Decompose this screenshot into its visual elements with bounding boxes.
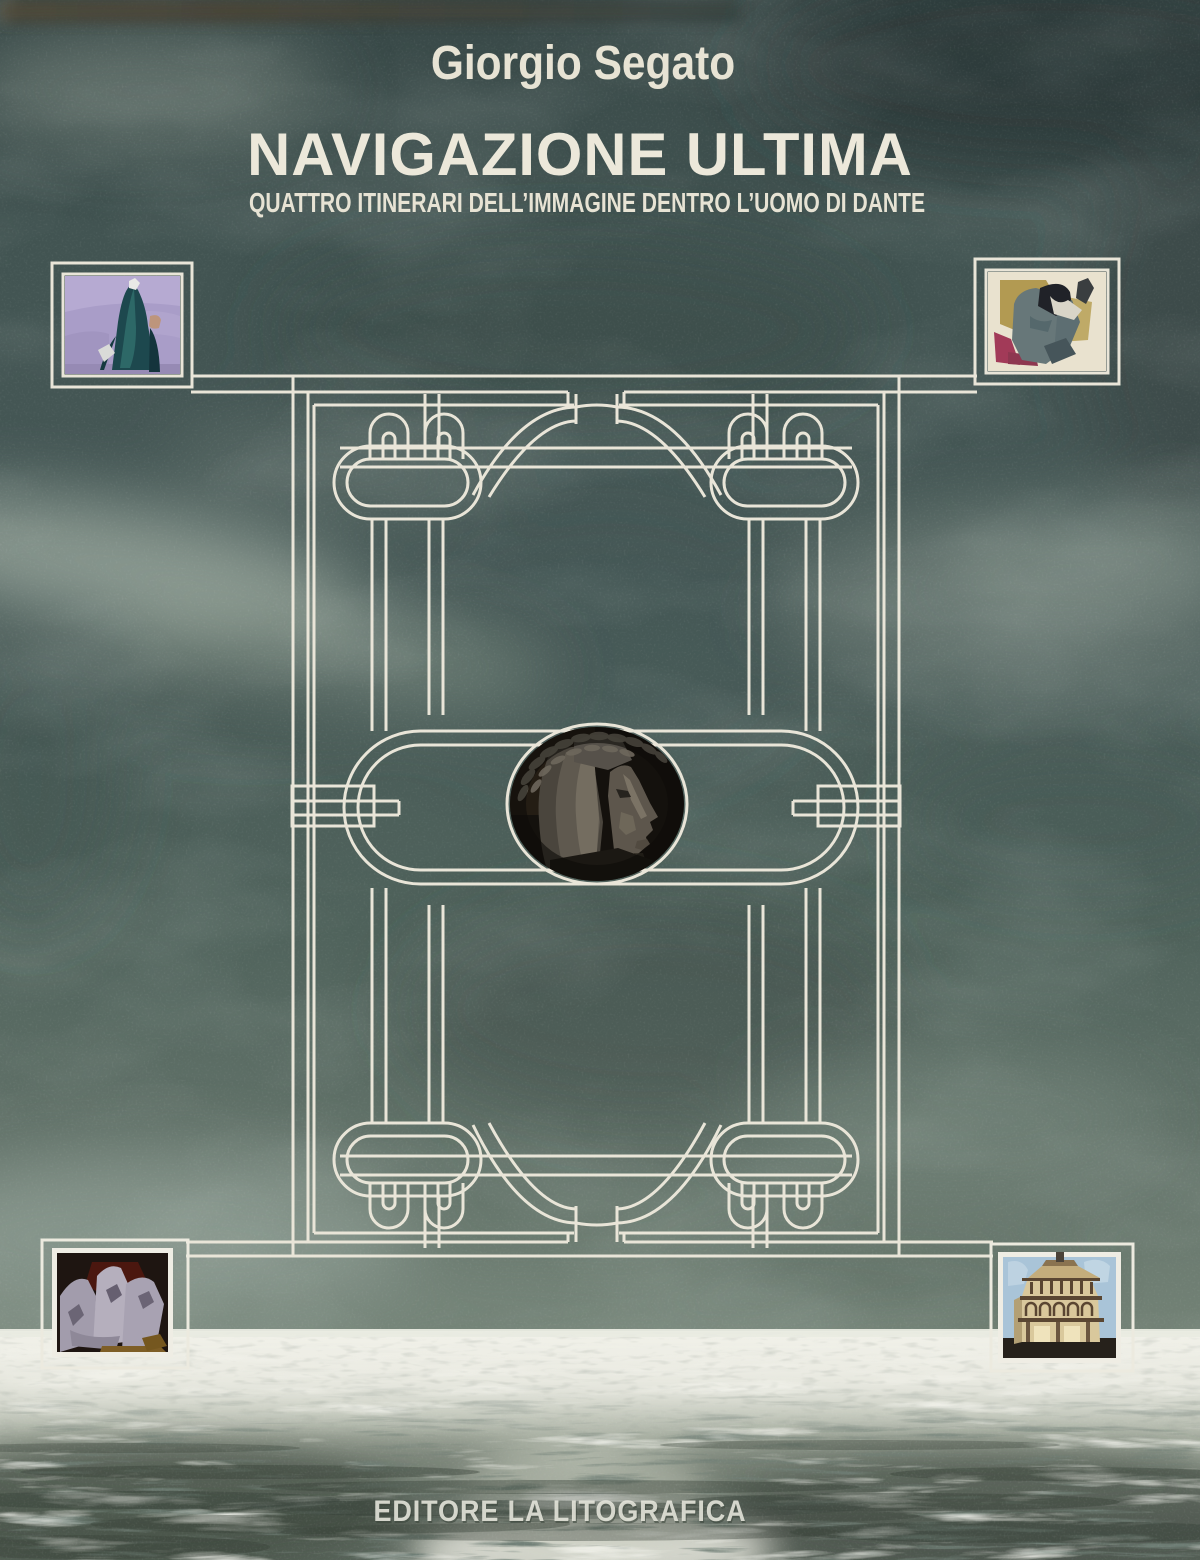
svg-text:EDITORE LA LITOGRAFICA: EDITORE LA LITOGRAFICA: [373, 1495, 746, 1529]
svg-text:NAVIGAZIONE ULTIMA: NAVIGAZIONE ULTIMA: [247, 121, 913, 188]
svg-text:QUATTRO ITINERARI DELL’IMMAGIN: QUATTRO ITINERARI DELL’IMMAGINE DENTRO L…: [249, 188, 925, 219]
svg-text:Giorgio Segato: Giorgio Segato: [431, 36, 735, 90]
